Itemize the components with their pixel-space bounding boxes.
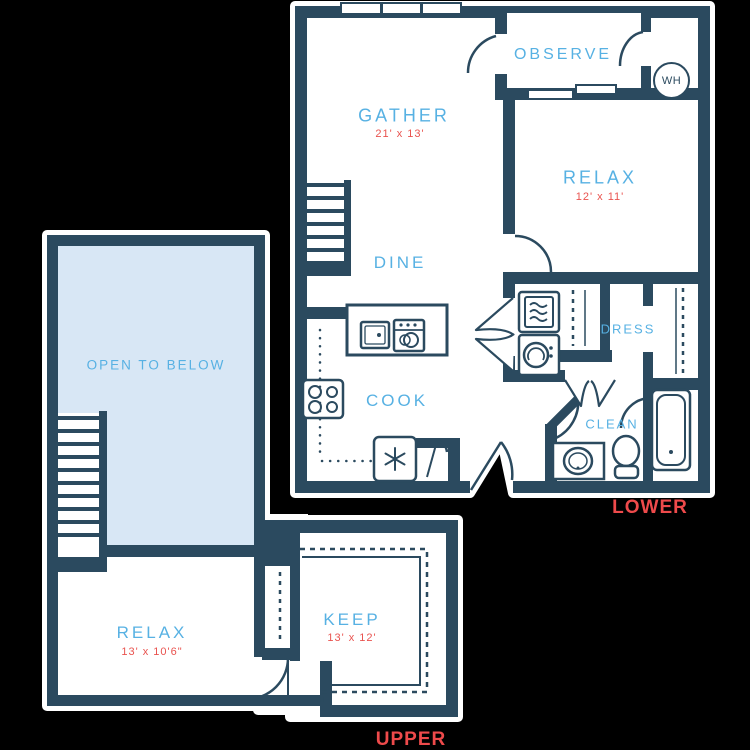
room-label-relax-upper: RELAX [117,623,188,643]
level-label-upper: UPPER [376,729,446,750]
room-label-dress: DRESS [601,322,656,337]
floor-plan-page: OBSERVE GATHER 21' x 13' RELAX 12' x 11'… [0,0,750,750]
room-label-cook: COOK [366,391,428,411]
room-dims-gather: 21' x 13' [375,128,424,140]
room-dims-keep: 13' x 12' [327,632,376,644]
washer-icon [519,335,559,375]
room-dims-relax-lower: 12' x 11' [576,191,624,203]
refrigerator-icon [374,437,416,481]
balcony-rail [507,6,641,13]
vanity-sink-icon [553,443,604,479]
room-dims-relax-upper: 13' x 10'6" [121,646,182,658]
stove-icon [303,380,343,418]
room-label-gather: GATHER [358,106,450,127]
water-heater-label: WH [662,75,681,87]
bathtub-icon [652,390,690,470]
dryer-icon [519,292,559,332]
toilet-icon [613,436,639,478]
room-label-open-to-below: OPEN TO BELOW [87,358,226,373]
room-label-keep: KEEP [323,610,380,630]
level-label-lower: LOWER [612,497,688,519]
room-label-observe: OBSERVE [514,46,612,64]
dishwasher-icon [394,320,424,351]
sink-icon [361,322,389,348]
room-label-relax-lower: RELAX [563,168,637,189]
room-label-clean: CLEAN [585,417,638,432]
water-heater-icon: WH [653,62,690,99]
lower-floor-plan [295,3,710,493]
stairs-icon [58,411,107,572]
room-label-dine: DINE [374,253,427,273]
